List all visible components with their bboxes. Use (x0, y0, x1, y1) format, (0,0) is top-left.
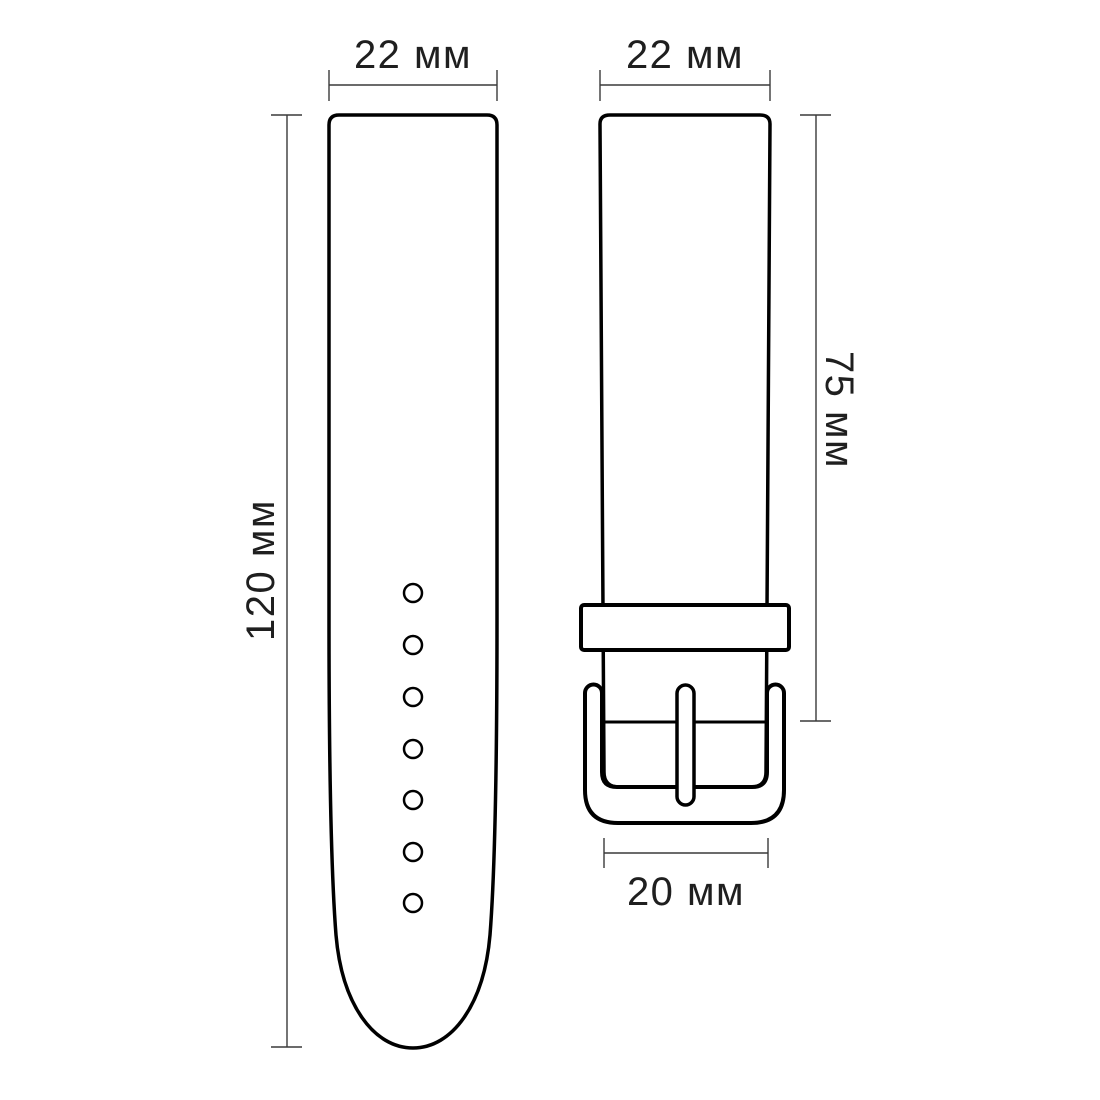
diagram-svg: 22 мм 120 мм 22 мм (0, 0, 1100, 1100)
strap-hole (404, 791, 422, 809)
dimension-tail-width: 22 мм (329, 33, 497, 101)
strap-hole (404, 636, 422, 654)
strap-hole (404, 688, 422, 706)
strap-hole (404, 584, 422, 602)
tail-length-label: 120 мм (239, 499, 283, 641)
buckle-strap (581, 115, 789, 823)
dimension-buckle-bar-width: 20 мм (604, 838, 768, 914)
strap-hole (404, 843, 422, 861)
dimension-tail-length: 120 мм (239, 115, 302, 1047)
strap-dimensions-diagram: 22 мм 120 мм 22 мм (0, 0, 1100, 1100)
tail-width-label: 22 мм (354, 33, 472, 77)
buckle-length-label: 75 мм (817, 351, 861, 469)
keeper-loop (581, 605, 789, 650)
strap-hole (404, 894, 422, 912)
strap-hole (404, 740, 422, 758)
dimension-buckle-width: 22 мм (600, 33, 770, 101)
buckle-width-label: 22 мм (626, 33, 744, 77)
buckle-bar-width-label: 20 мм (627, 870, 745, 914)
dimension-buckle-length: 75 мм (800, 115, 861, 721)
tail-strap (329, 115, 497, 1048)
buckle-prong (677, 685, 694, 805)
